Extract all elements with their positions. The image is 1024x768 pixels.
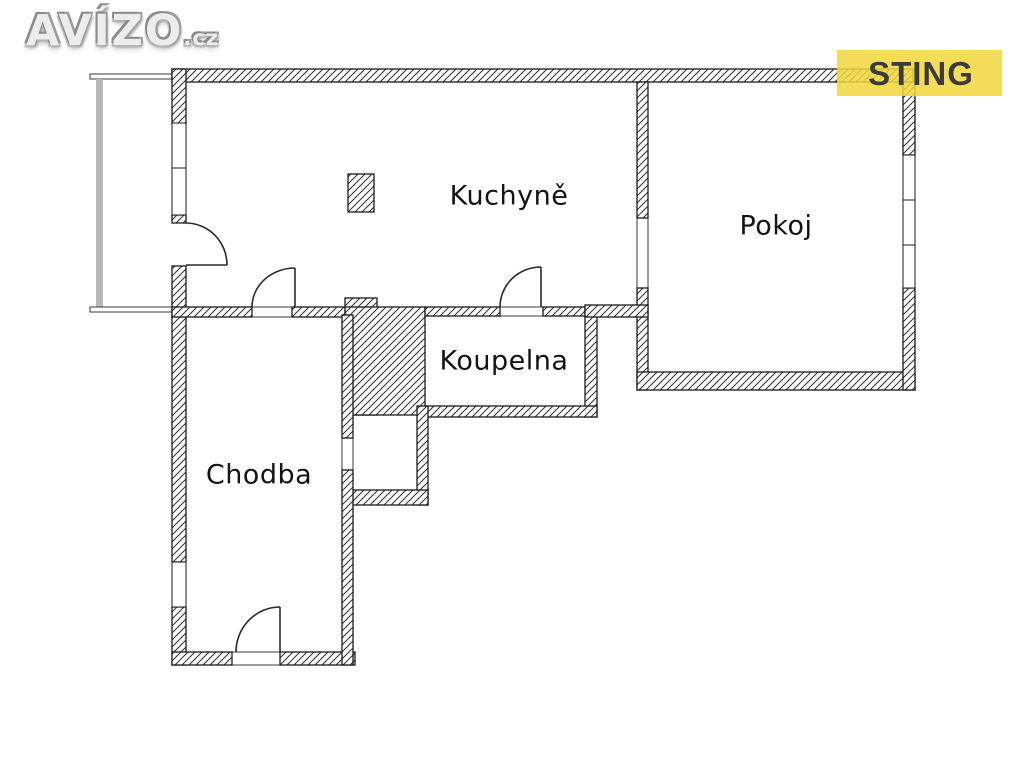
wall-top-exterior (172, 69, 913, 82)
wall-hall-left-upper (172, 315, 186, 562)
entrance-door-swing (236, 607, 280, 652)
wall-kitchen-left-pier (172, 215, 186, 223)
wall-kitchen-bottom-right (292, 307, 347, 317)
entrance-door-threshold (232, 652, 280, 665)
wall-bath-top-left (425, 307, 500, 316)
balcony-glazing-bar (96, 79, 103, 307)
niche-opening (342, 438, 353, 470)
wall-kitchen-bottom-left (172, 307, 252, 317)
portal-logo-text: AVÍZO (26, 6, 183, 56)
balcony-door-swing (186, 223, 227, 265)
wall-room-bottom (637, 372, 915, 390)
doors (186, 223, 541, 652)
portal-logo: AVÍZO.cz (26, 6, 219, 56)
balcony-slab-bottom-line (90, 307, 172, 312)
kitchen-hall-door-threshold (252, 307, 292, 317)
hall-window (172, 562, 186, 607)
wall-hall-bottom-left (172, 652, 232, 665)
wall-kitchen-room-divider-upper (637, 82, 648, 218)
floorplan-svg: STING (0, 0, 1024, 768)
chimney-pillar (348, 174, 374, 212)
wall-bath-bottom (425, 406, 597, 417)
room-label-koupelna: Koupelna (440, 346, 569, 377)
balcony (90, 74, 172, 312)
wall-recess-top (585, 305, 648, 317)
kitchen-hall-door-swing (252, 268, 295, 307)
wall-kitchen-left-upper (172, 69, 186, 124)
kitchen-bath-door-swing (500, 267, 541, 307)
balcony-slab-top-line (90, 74, 172, 79)
agency-badge-label: STING (868, 55, 974, 92)
room-window (903, 155, 915, 288)
kitchen-bath-door-threshold (500, 307, 543, 316)
room-label-kuchyne: Kuchyně (450, 181, 569, 212)
portal-logo-tld: .cz (183, 26, 219, 50)
room-label-chodba: Chodba (206, 460, 312, 491)
wall-niche-bottom (347, 490, 428, 505)
agency-badge: STING (837, 50, 1002, 96)
wall-hall-right-lower (342, 470, 353, 665)
floorplan-page: STING AVÍZO.cz Kuchyně Pokoj Koupelna Ch… (0, 0, 1024, 768)
wall-hall-right-upper (342, 315, 353, 438)
kitchen-window (172, 123, 186, 215)
room-door-opening (637, 218, 648, 288)
room-label-pokoj: Pokoj (739, 211, 812, 242)
wall-bath-right (585, 307, 597, 417)
wall-room-right-lower (903, 288, 915, 390)
wall-core-block (345, 307, 425, 415)
